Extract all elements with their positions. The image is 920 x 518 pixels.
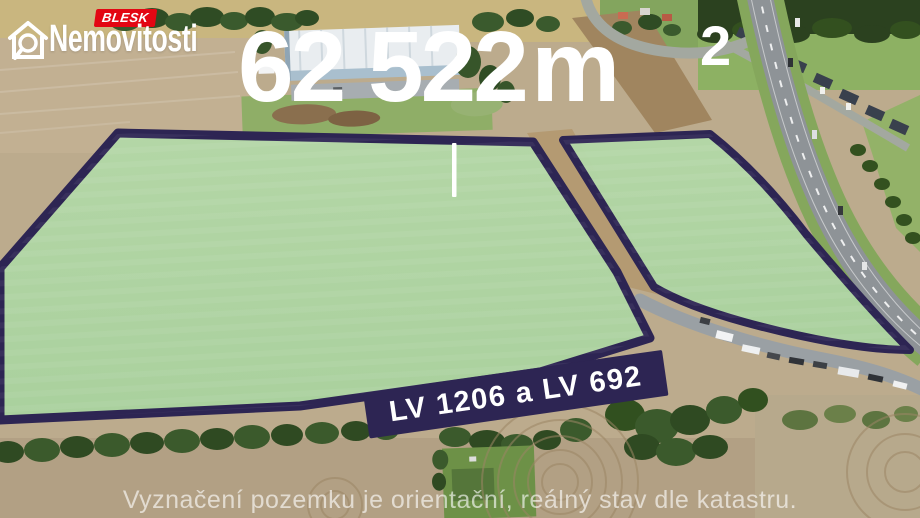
house-search-icon — [5, 17, 51, 65]
area-unit: m — [531, 11, 617, 123]
brand-name: Nemovitosti — [49, 20, 197, 58]
area-headline: 62 522 m 2 — [238, 17, 617, 117]
listing-photo-frame: BLESK Nemovitosti 62 522 m 2 LV 1206 a L… — [0, 0, 920, 518]
logo-group: BLESK Nemovitosti — [0, 0, 230, 70]
parcel-pointer-line — [452, 143, 457, 197]
area-exponent: 2 — [700, 13, 731, 78]
disclaimer-caption: Vyznačení pozemku je orientační, reálný … — [0, 486, 920, 515]
area-value: 62 522 m — [238, 11, 617, 123]
